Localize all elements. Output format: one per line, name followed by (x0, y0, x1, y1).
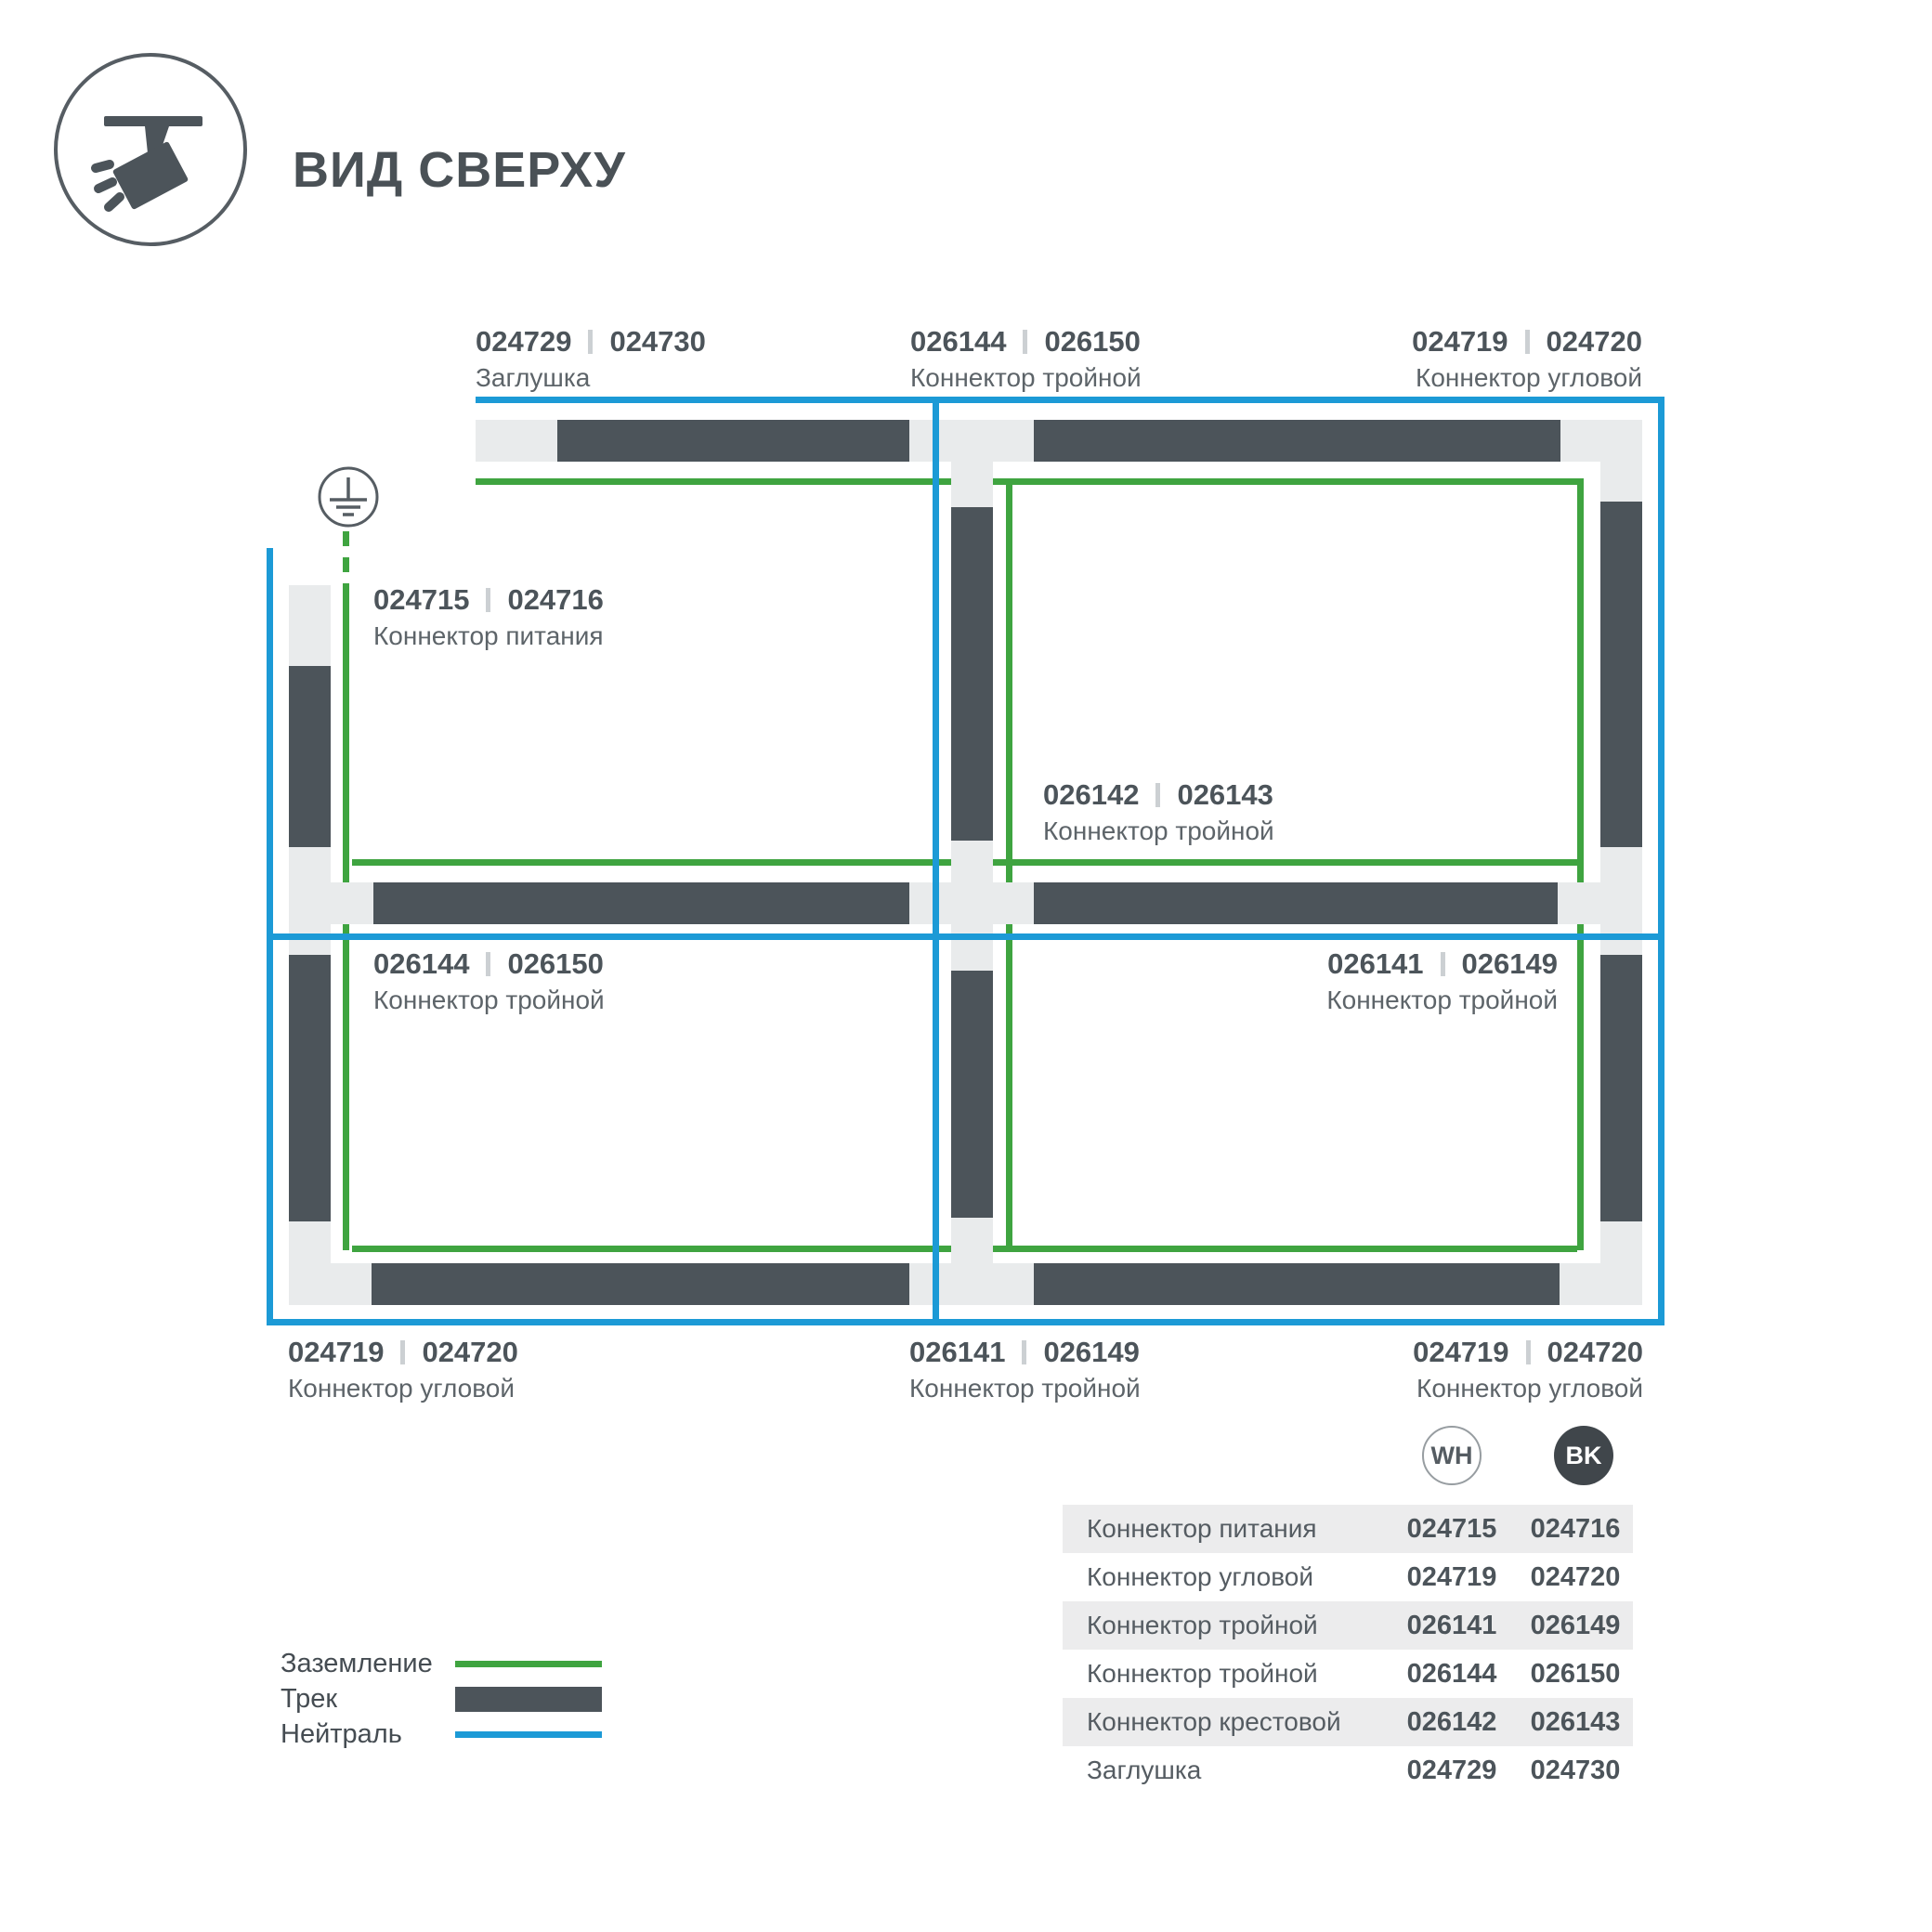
connector-name: Коннектор тройной (910, 365, 1142, 391)
connector-name: Коннектор питания (373, 623, 604, 649)
neutral-line-middle (933, 397, 939, 1325)
table-row: Коннектор тройной 026144 026150 (1063, 1650, 1633, 1698)
part-article-bk: 026143 (1518, 1707, 1633, 1738)
legend-item-ground: Заземление (281, 1646, 606, 1681)
table-row: Коннектор питания 024715 024716 (1063, 1505, 1633, 1553)
label-end-cap: 024729024730 Заглушка (476, 327, 706, 391)
table-row: Коннектор тройной 026141 026149 (1063, 1601, 1633, 1650)
article-wh: 026144 (373, 949, 469, 978)
article-numbers: 024729024730 (476, 327, 706, 356)
article-wh: 026141 (1327, 949, 1423, 978)
connector-name: Заглушка (476, 365, 706, 391)
part-article-wh: 024719 (1386, 1562, 1518, 1593)
label-t-connector-top: 026144026150 Коннектор тройной (910, 327, 1142, 391)
cross-connector-vertical (951, 841, 993, 971)
divider (1526, 1340, 1531, 1364)
end-cap-connector (476, 420, 557, 462)
connector-name: Коннектор тройной (1043, 818, 1274, 844)
neutral-line-bottom (267, 1319, 1664, 1325)
page-title: ВИД СВЕРХУ (293, 145, 626, 195)
divider (588, 330, 593, 354)
white-color-badge: WH (1422, 1426, 1482, 1485)
article-numbers: 026141026149 (1326, 949, 1558, 978)
part-article-wh: 024715 (1386, 1514, 1518, 1545)
article-wh: 026144 (910, 327, 1006, 356)
t-connector-bottom (909, 1263, 1034, 1305)
track-segment (1034, 420, 1560, 462)
article-wh: 026141 (909, 1338, 1005, 1366)
t-connector-right-stem (1558, 882, 1600, 924)
ground-icon (318, 466, 379, 528)
divider (1441, 952, 1445, 976)
corner-connector-top-right-stem (1600, 462, 1642, 502)
ground-line-swatch (455, 1661, 602, 1667)
legend-item-neutral: Нейтраль (281, 1717, 606, 1752)
divider (486, 588, 490, 612)
power-connector (289, 585, 331, 666)
label-t-connector-left: 026144026150 Коннектор тройной (373, 949, 605, 1013)
article-bk: 026149 (1043, 1338, 1139, 1366)
article-bk: 024720 (422, 1338, 517, 1366)
connector-name: Коннектор тройной (1326, 987, 1558, 1013)
article-bk: 024720 (1547, 1338, 1643, 1366)
label-corner-bottom-left: 024719024720 Коннектор угловой (288, 1338, 518, 1402)
track-segment (951, 971, 993, 1218)
track-segment (372, 1263, 909, 1305)
part-article-wh: 026144 (1386, 1659, 1518, 1690)
article-numbers: 026141026149 (909, 1338, 1141, 1366)
track-segment (289, 955, 331, 1221)
legend-label: Нейтраль (281, 1719, 402, 1750)
article-numbers: 024719024720 (1413, 1338, 1643, 1366)
divider (400, 1340, 405, 1364)
part-name: Заглушка (1063, 1756, 1386, 1785)
corner-connector-top-right (1560, 420, 1642, 462)
connector-name: Коннектор тройной (373, 987, 605, 1013)
label-corner-bottom-right: 024719024720 Коннектор угловой (1413, 1338, 1643, 1402)
table-row: Заглушка 024729 024730 (1063, 1746, 1633, 1795)
black-color-badge: BK (1554, 1426, 1613, 1485)
corner-connector-bottom-right-stem (1600, 1221, 1642, 1263)
article-bk: 026149 (1462, 949, 1558, 978)
part-name: Коннектор тройной (1063, 1611, 1386, 1640)
parts-table: Коннектор питания 024715 024716 Коннекто… (1063, 1505, 1633, 1795)
part-name: Коннектор крестовой (1063, 1707, 1386, 1737)
legend-item-track: Трек (281, 1681, 606, 1717)
article-bk: 026143 (1177, 780, 1273, 809)
corner-connector-bottom-right (1560, 1263, 1642, 1305)
part-article-wh: 026142 (1386, 1707, 1518, 1738)
part-article-bk: 024716 (1518, 1514, 1633, 1545)
track-segment (951, 507, 993, 841)
divider (1022, 1340, 1026, 1364)
connector-name: Коннектор угловой (1412, 365, 1642, 391)
part-article-bk: 026149 (1518, 1611, 1633, 1641)
article-numbers: 024719024720 (1412, 327, 1642, 356)
article-bk: 024716 (507, 585, 603, 614)
table-row: Коннектор угловой 024719 024720 (1063, 1553, 1633, 1601)
article-wh: 024729 (476, 327, 571, 356)
article-numbers: 026142026143 (1043, 780, 1274, 809)
article-wh: 024719 (288, 1338, 384, 1366)
neutral-line-mid-horizontal (267, 933, 1664, 940)
label-corner-top-right: 024719024720 Коннектор угловой (1412, 327, 1642, 391)
divider (1155, 783, 1160, 807)
table-row: Коннектор крестовой 026142 026143 (1063, 1698, 1633, 1746)
article-bk: 024730 (609, 327, 705, 356)
track-segment (373, 882, 909, 924)
label-cross-connector: 026142026143 Коннектор тройной (1043, 780, 1274, 844)
part-article-bk: 024720 (1518, 1562, 1633, 1593)
track-segment (1034, 1263, 1560, 1305)
track-segment (1600, 502, 1642, 847)
corner-connector-bottom-left-stem (289, 1221, 331, 1263)
legend-label: Заземление (281, 1649, 433, 1679)
part-name: Коннектор тройной (1063, 1659, 1386, 1689)
article-numbers: 026144026150 (373, 949, 605, 978)
part-article-bk: 024730 (1518, 1756, 1633, 1786)
part-name: Коннектор угловой (1063, 1562, 1386, 1592)
label-t-connector-right: 026141026149 Коннектор тройной (1326, 949, 1558, 1013)
article-bk: 026150 (507, 949, 603, 978)
t-connector-bottom-stem (951, 1218, 993, 1263)
article-numbers: 024719024720 (288, 1338, 518, 1366)
divider (486, 952, 490, 976)
label-power-connector: 024715024716 Коннектор питания (373, 585, 604, 649)
track-segment (289, 666, 331, 847)
neutral-line-right (1658, 397, 1664, 1325)
article-bk: 026150 (1044, 327, 1140, 356)
part-article-wh: 024729 (1386, 1756, 1518, 1786)
track-segment (1034, 882, 1558, 924)
t-connector-top (909, 420, 1034, 462)
part-name: Коннектор питания (1063, 1514, 1386, 1544)
divider (1525, 330, 1530, 354)
ground-line-right (1577, 478, 1584, 1250)
part-article-bk: 026150 (1518, 1659, 1633, 1690)
label-t-connector-bottom: 026141026149 Коннектор тройной (909, 1338, 1141, 1402)
legend: Заземление Трек Нейтраль (281, 1646, 606, 1752)
connector-name: Коннектор тройной (909, 1376, 1141, 1402)
ground-line-top (476, 478, 1584, 485)
ground-line-dashed (343, 531, 349, 583)
connector-name: Коннектор угловой (288, 1376, 518, 1402)
article-wh: 026142 (1043, 780, 1139, 809)
page: ВИД СВЕРХУ (0, 0, 1932, 1932)
neutral-line-swatch (455, 1731, 602, 1738)
article-wh: 024719 (1412, 327, 1508, 356)
corner-connector-bottom-left (289, 1263, 372, 1305)
t-connector-left-stem (331, 882, 373, 924)
neutral-line-top (476, 397, 1664, 403)
t-connector-top-stem (951, 462, 993, 507)
article-wh: 024719 (1413, 1338, 1508, 1366)
track-segment (1600, 955, 1642, 1221)
divider (1023, 330, 1027, 354)
article-bk: 024720 (1547, 327, 1642, 356)
article-numbers: 026144026150 (910, 327, 1142, 356)
part-article-wh: 026141 (1386, 1611, 1518, 1641)
track-segment (557, 420, 909, 462)
track-light-icon (52, 51, 249, 248)
track-bar-swatch (455, 1687, 602, 1712)
article-wh: 024715 (373, 585, 469, 614)
connector-name: Коннектор угловой (1413, 1376, 1643, 1402)
article-numbers: 024715024716 (373, 585, 604, 614)
legend-label: Трек (281, 1684, 337, 1715)
